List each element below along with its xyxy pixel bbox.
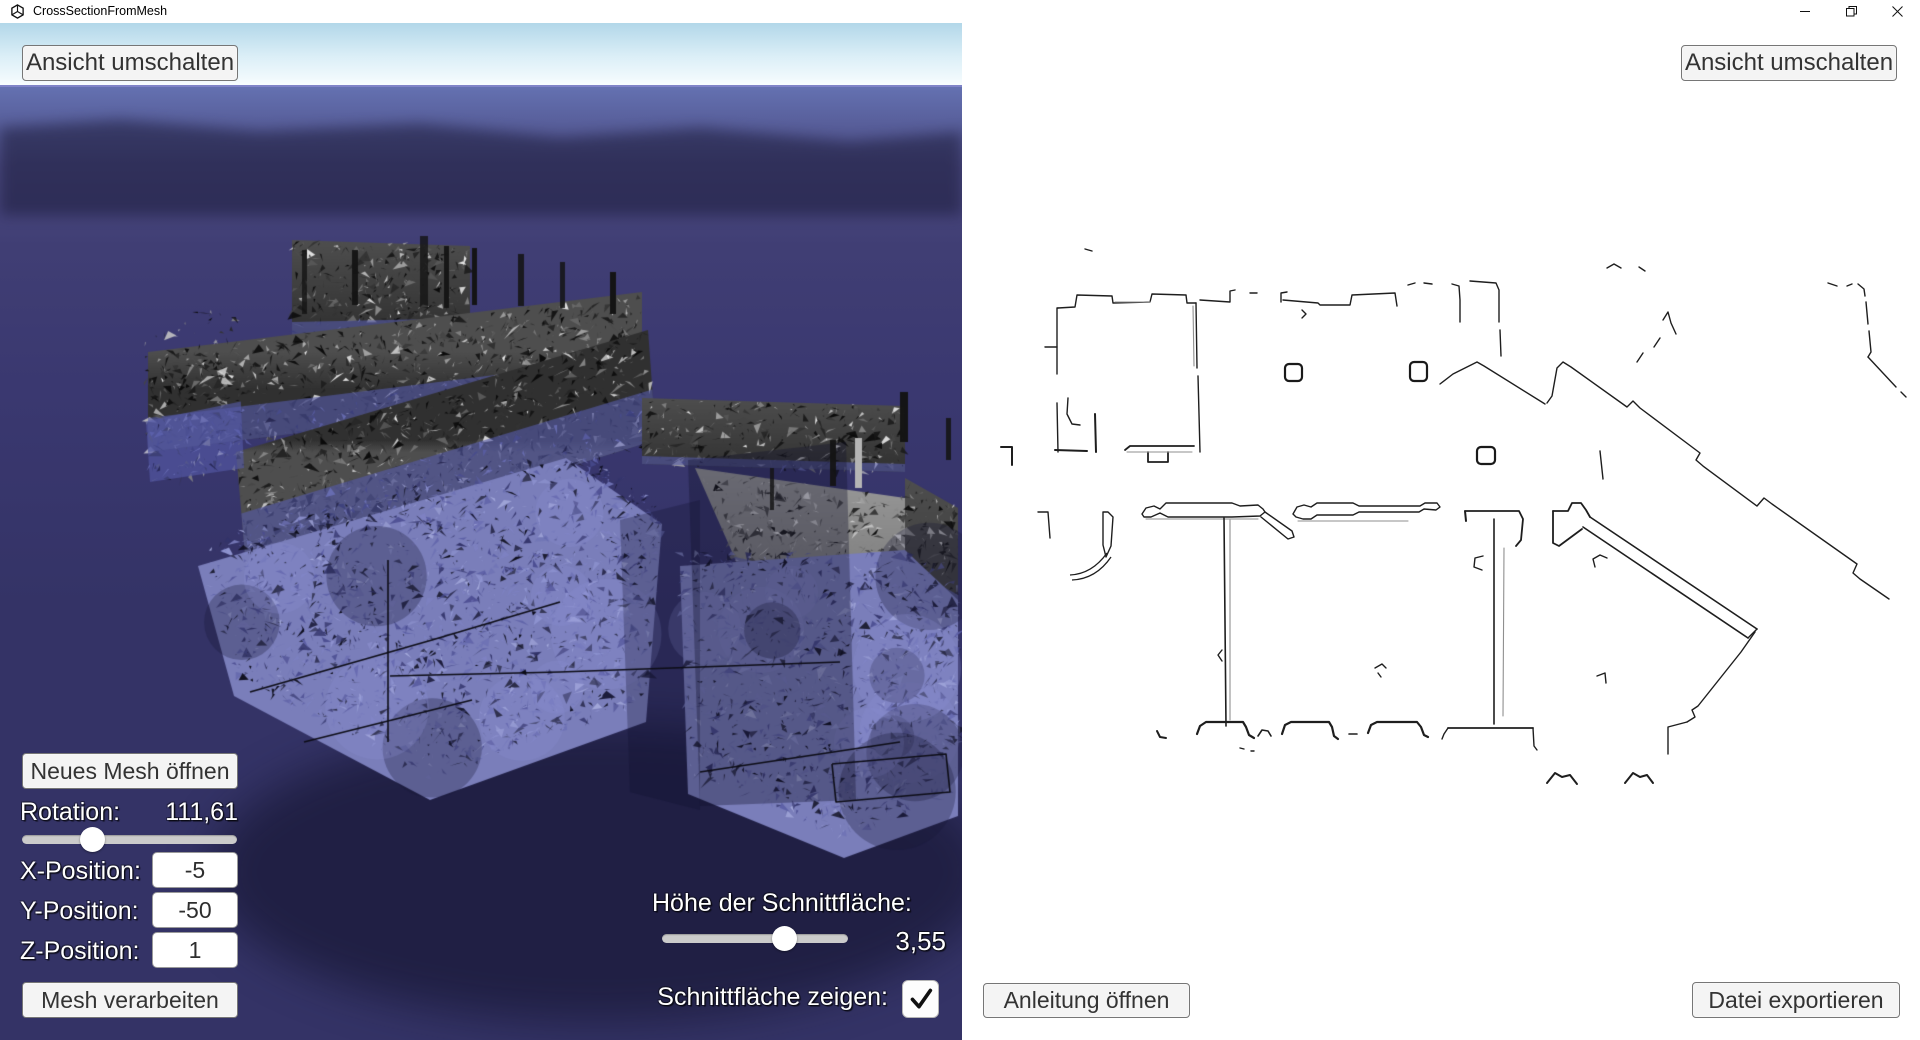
rotation-label: Rotation: [20,798,120,827]
process-mesh-button[interactable]: Mesh verarbeiten [22,982,238,1018]
mesh-3d-render [0,23,962,1040]
rotation-slider[interactable] [22,835,237,844]
title-bar[interactable]: CrossSectionFromMesh [0,0,1920,23]
show-plane-checkbox[interactable] [902,980,939,1018]
z-position-label: Z-Position: [20,937,139,966]
floorplan-drawing [962,23,1920,1040]
export-file-button[interactable]: Datei exportieren [1692,982,1900,1018]
cut-height-value: 3,55 [878,926,946,957]
open-manual-button[interactable]: Anleitung öffnen [983,983,1190,1018]
cut-height-label: Höhe der Schnittfläche: [652,889,912,918]
app-window: CrossSectionFromMesh Ansicht umschalten … [0,0,1920,1040]
window-restore-icon[interactable] [1828,0,1874,23]
x-position-input[interactable] [152,852,238,888]
y-position-input[interactable] [152,892,238,928]
window-close-icon[interactable] [1874,0,1920,23]
y-position-label: Y-Position: [20,897,139,926]
plan-viewport: Ansicht umschalten Anleitung öffnen Date… [962,23,1920,1040]
window-title: CrossSectionFromMesh [33,0,167,23]
toggle-view-button-right[interactable]: Ansicht umschalten [1681,45,1897,81]
x-position-label: X-Position: [20,857,141,886]
rotation-value: 111,61 [148,798,238,827]
window-minimize-icon[interactable] [1782,0,1828,23]
cut-height-slider[interactable] [662,934,848,943]
unity-logo-icon [10,4,25,19]
show-plane-label: Schnittfläche zeigen: [640,983,888,1012]
rotation-slider-track[interactable] [22,835,237,844]
mesh-viewport: Ansicht umschalten Neues Mesh öffnen Rot… [0,23,962,1040]
checkmark-icon [906,984,936,1014]
toggle-view-button-left[interactable]: Ansicht umschalten [22,45,238,81]
cut-height-slider-track[interactable] [662,934,848,943]
z-position-input[interactable] [152,932,238,968]
open-mesh-button[interactable]: Neues Mesh öffnen [22,753,238,789]
